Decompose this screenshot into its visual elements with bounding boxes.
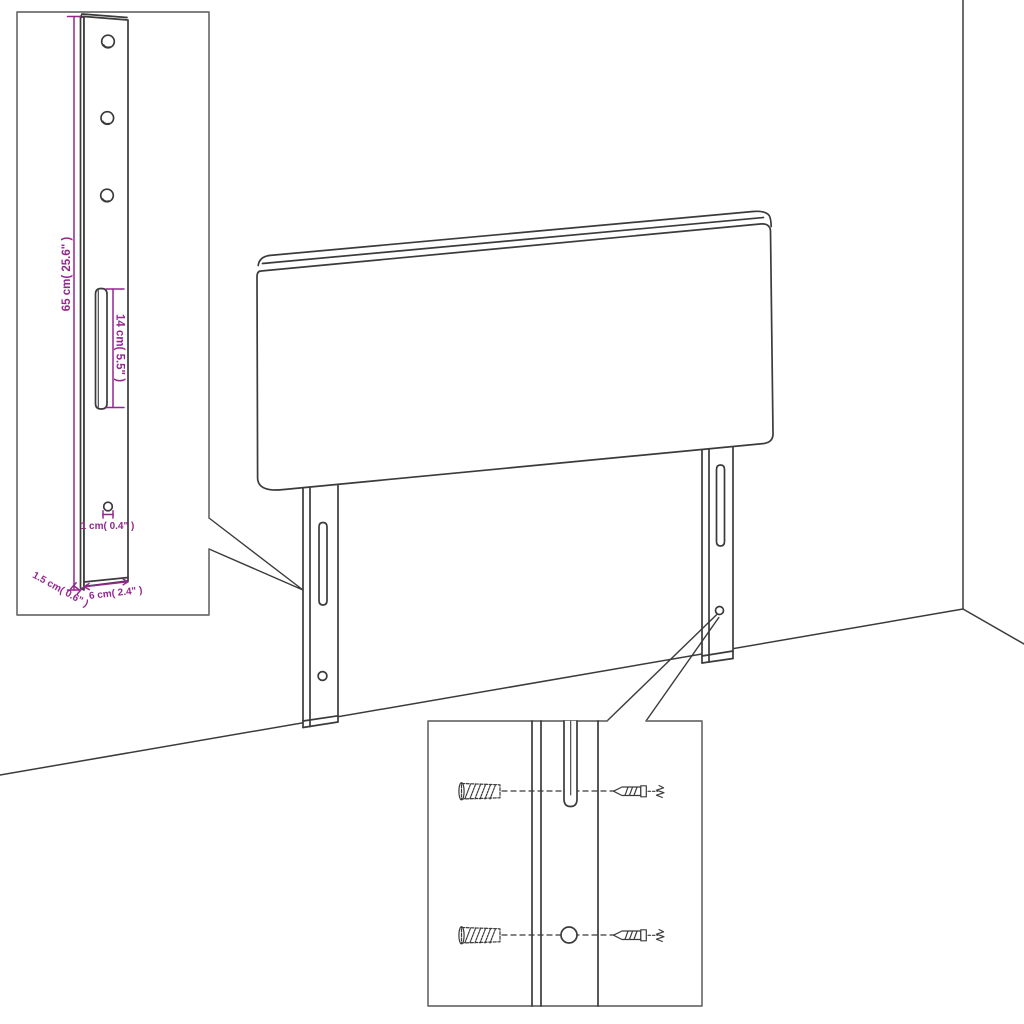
wall-plug-icon-top (459, 783, 500, 800)
line-art: 65 cm( 25.6" ) 14 cm( 5.5" ) 1 cm( 0.4" … (0, 0, 1024, 1006)
right-leg-screw-hole (716, 607, 724, 615)
bracket-drawing (81, 14, 129, 590)
mounting-detail (459, 721, 664, 1006)
slot-length-dimension-label: 14 cm( 5.5" ) (114, 314, 126, 382)
bracket-hole-1 (102, 35, 115, 48)
headboard-panel (257, 224, 773, 490)
bracket-slot (96, 289, 108, 410)
floor-line-right (963, 609, 1024, 644)
floor-line-left (0, 609, 963, 775)
wall-plug-icon-bottom (459, 927, 500, 944)
headboard-assembly-diagram: 65 cm( 25.6" ) 14 cm( 5.5" ) 1 cm( 0.4" … (0, 0, 1024, 1024)
headboard (257, 211, 773, 490)
callout-lines-bracket (209, 518, 303, 590)
bracket-hole-3 (101, 189, 114, 202)
left-leg (303, 484, 338, 728)
right-leg-slot (717, 465, 725, 546)
screw-icon-bottom (614, 930, 664, 942)
height-dimension-label: 65 cm( 25.6" ) (61, 237, 73, 312)
mounting-hole-circle (561, 927, 577, 943)
right-leg (702, 447, 733, 664)
left-leg-screw-hole (318, 672, 327, 681)
bracket-hole-2 (101, 112, 114, 125)
bracket-bottom-hole (104, 502, 113, 511)
left-leg-slot (319, 523, 327, 606)
width-dimension-label: 6 cm( 2.4" ) (88, 585, 143, 602)
assembly-diagram-page: 65 cm( 25.6" ) 14 cm( 5.5" ) 1 cm( 0.4" … (0, 0, 1024, 1024)
hole-diameter-dimension-label: 1 cm( 0.4" ) (81, 521, 135, 532)
screw-icon-top (614, 786, 664, 798)
